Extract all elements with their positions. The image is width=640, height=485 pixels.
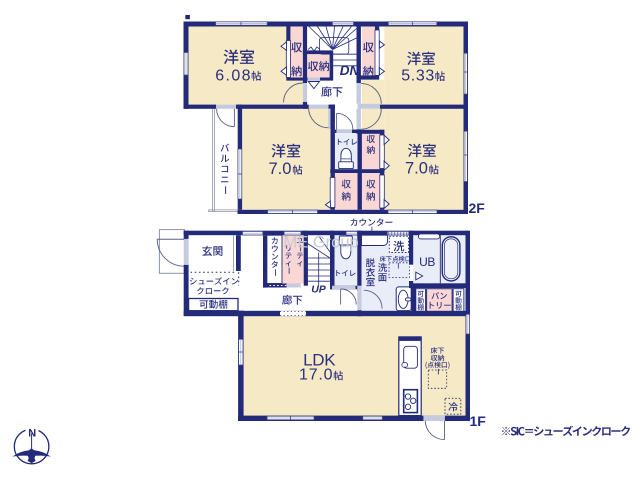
svg-text:5.33: 5.33 [401,68,435,85]
svg-text:7.0: 7.0 [405,160,428,178]
svg-text:7.0: 7.0 [269,160,292,178]
svg-text:1F: 1F [470,413,487,429]
svg-text:UB: UB [419,255,435,269]
svg-text:2F: 2F [469,200,486,216]
svg-text:UP: UP [311,284,327,296]
svg-text:17.0: 17.0 [299,367,333,384]
svg-text:N: N [28,428,36,440]
svg-text:6.08: 6.08 [215,67,252,84]
svg-text:ME Group: ME Group [284,234,359,252]
